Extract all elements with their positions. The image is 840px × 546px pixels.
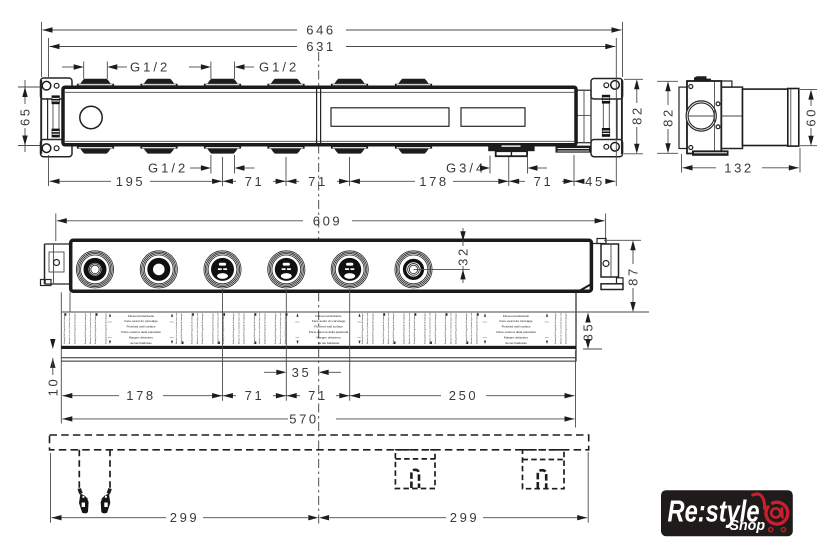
svg-text:82: 82	[661, 107, 676, 127]
svg-text:609: 609	[313, 213, 343, 228]
svg-text:87: 87	[625, 266, 640, 286]
svg-text:35: 35	[292, 365, 312, 380]
svg-text:646: 646	[306, 23, 336, 38]
svg-text:35: 35	[581, 322, 596, 342]
svg-text:250: 250	[449, 388, 479, 403]
svg-text:71: 71	[245, 174, 265, 189]
svg-text:65: 65	[18, 106, 33, 126]
svg-text:71: 71	[245, 388, 265, 403]
svg-text:570: 570	[289, 411, 319, 426]
svg-text:Shop: Shop	[730, 517, 766, 534]
svg-text:82: 82	[629, 105, 644, 125]
svg-text:45: 45	[585, 174, 605, 189]
svg-text:132: 132	[724, 160, 754, 175]
svg-text:G1/2: G1/2	[148, 161, 188, 176]
svg-text:10: 10	[45, 377, 60, 397]
svg-text:299: 299	[450, 510, 480, 525]
svg-text:71: 71	[308, 388, 328, 403]
svg-text:178: 178	[126, 388, 156, 403]
svg-text:178: 178	[419, 174, 449, 189]
svg-text:71: 71	[534, 174, 554, 189]
svg-text:195: 195	[116, 174, 146, 189]
svg-text:G1/2: G1/2	[130, 60, 170, 75]
svg-text:299: 299	[170, 510, 200, 525]
svg-text:71: 71	[308, 174, 328, 189]
svg-text:631: 631	[306, 39, 336, 54]
svg-text:60: 60	[803, 107, 818, 127]
svg-text:32: 32	[456, 246, 471, 266]
svg-text:G1/2: G1/2	[259, 60, 299, 75]
